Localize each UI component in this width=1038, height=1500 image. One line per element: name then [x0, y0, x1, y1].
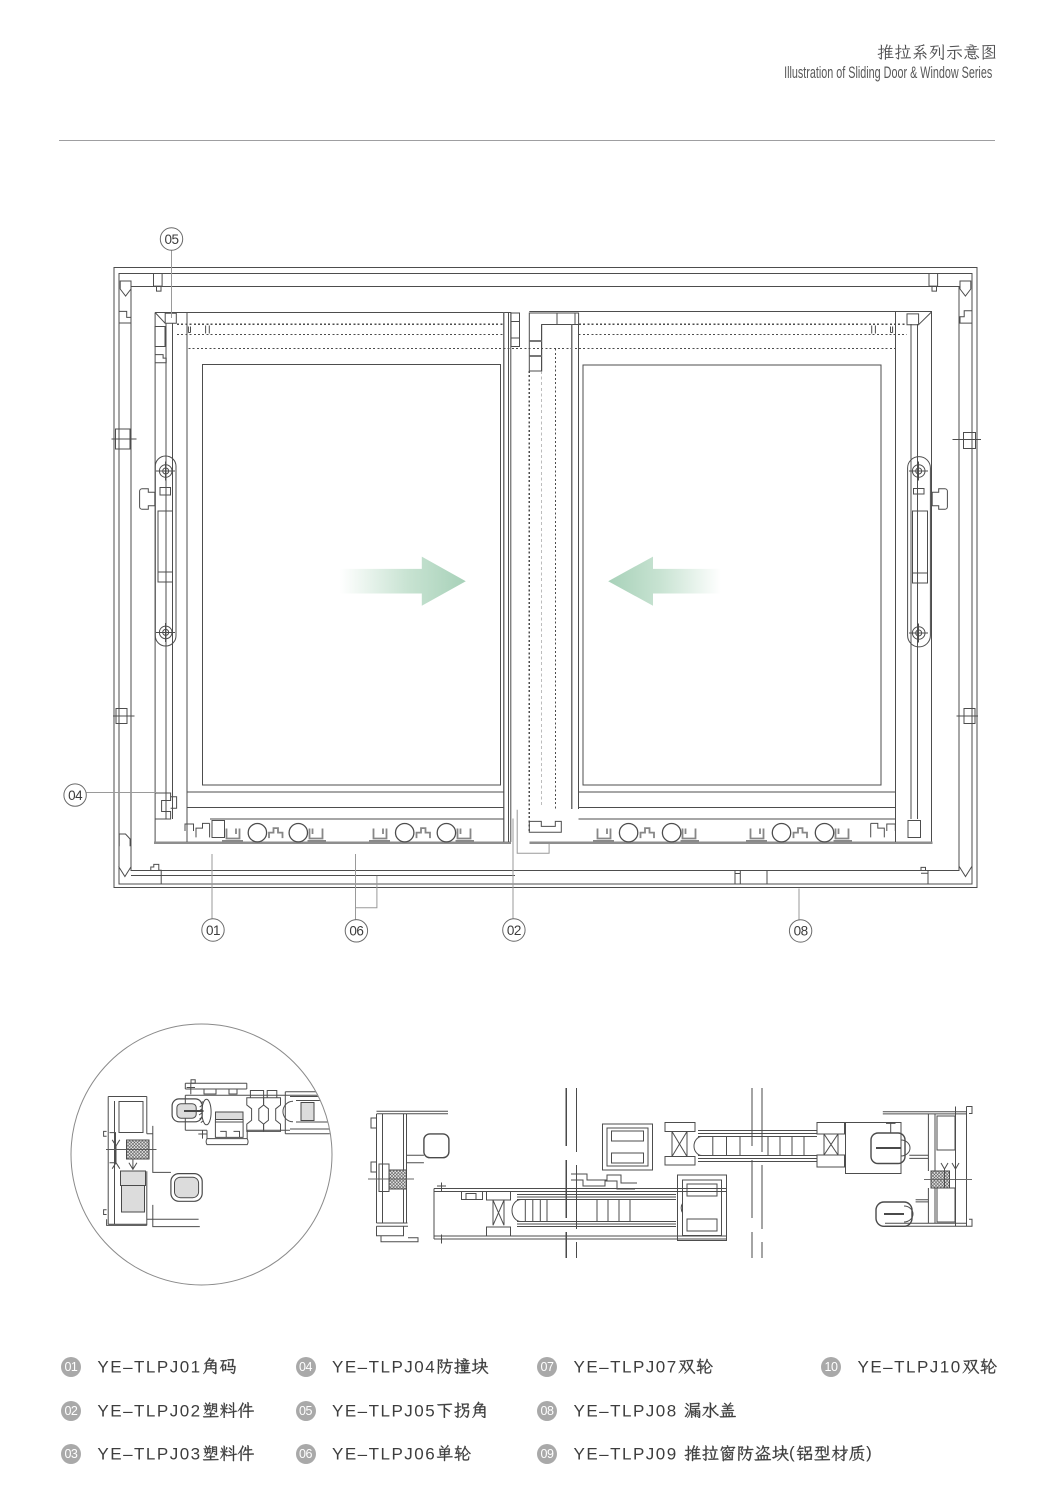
svg-text:08: 08 [794, 924, 808, 939]
svg-text:05: 05 [164, 232, 178, 247]
svg-text:04: 04 [68, 788, 83, 803]
svg-text:06: 06 [349, 924, 363, 939]
svg-text:01: 01 [206, 923, 220, 938]
svg-text:02: 02 [507, 923, 521, 938]
